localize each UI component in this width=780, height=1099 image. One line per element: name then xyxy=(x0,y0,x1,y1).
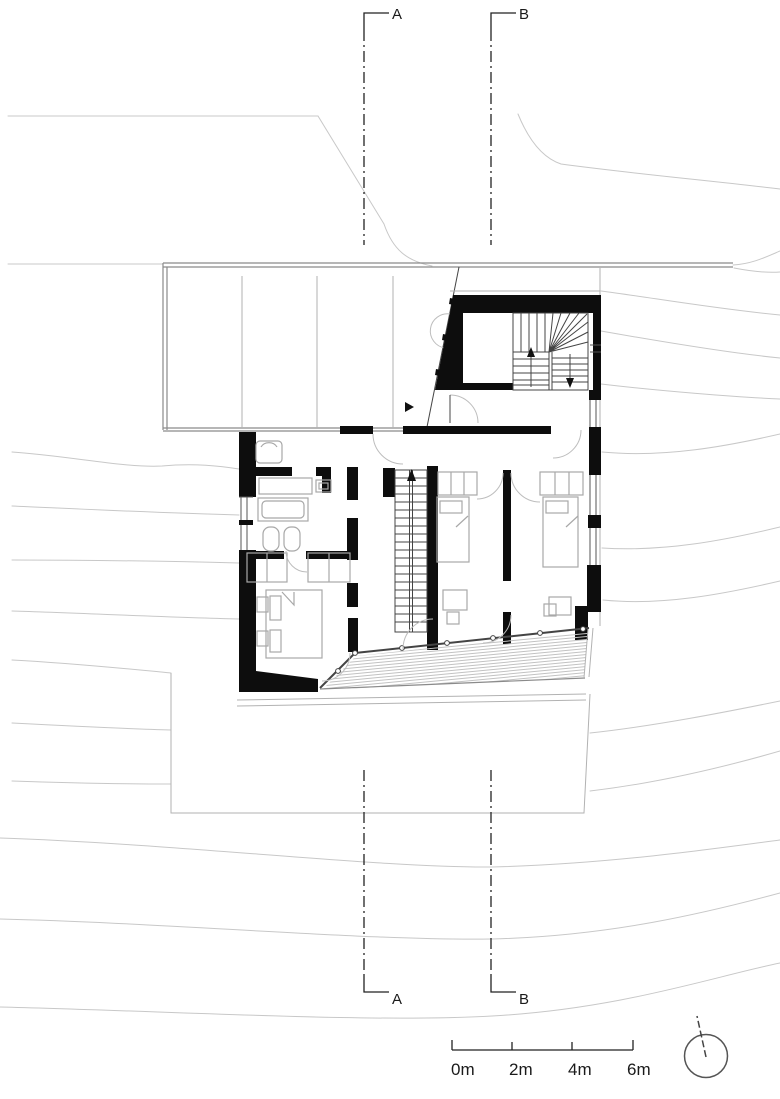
master-bedroom xyxy=(247,551,350,658)
wardrobe xyxy=(540,472,583,495)
winder-staircase xyxy=(513,313,588,390)
scale-label-4m: 4m xyxy=(568,1060,592,1079)
desk xyxy=(549,597,571,615)
arrow-down-icon xyxy=(566,378,574,388)
scale-label-0m: 0m xyxy=(451,1060,475,1079)
bedroom-right xyxy=(511,472,583,616)
arrow-up-icon xyxy=(407,469,416,481)
floor-plan-sheet: A A B B 0m 2m 4m 6m xyxy=(0,0,780,1099)
scale-label-2m: 2m xyxy=(509,1060,533,1079)
bathroom-fixtures xyxy=(256,441,331,551)
section-line-a: A A xyxy=(364,6,402,1008)
section-label-a-bottom: A xyxy=(392,991,402,1008)
wardrobe xyxy=(438,472,477,495)
single-bed xyxy=(437,497,469,562)
scale-label-6m: 6m xyxy=(627,1060,651,1079)
scale-bar: 0m 2m 4m 6m xyxy=(451,1040,651,1079)
entry-arrow-icon xyxy=(405,402,414,412)
lower-level-outline xyxy=(171,673,590,813)
contour-lines xyxy=(0,114,780,1018)
section-label-b-top: B xyxy=(519,6,529,23)
compass-circle-icon xyxy=(685,1016,728,1078)
desk xyxy=(443,590,467,610)
central-staircase xyxy=(395,469,427,632)
section-label-b-bottom: B xyxy=(519,991,529,1008)
bedroom-middle xyxy=(437,472,503,624)
floor-plan-drawing: A A B B 0m 2m 4m 6m xyxy=(0,0,780,1099)
single-bed xyxy=(543,497,578,567)
section-label-a-top: A xyxy=(392,6,402,23)
